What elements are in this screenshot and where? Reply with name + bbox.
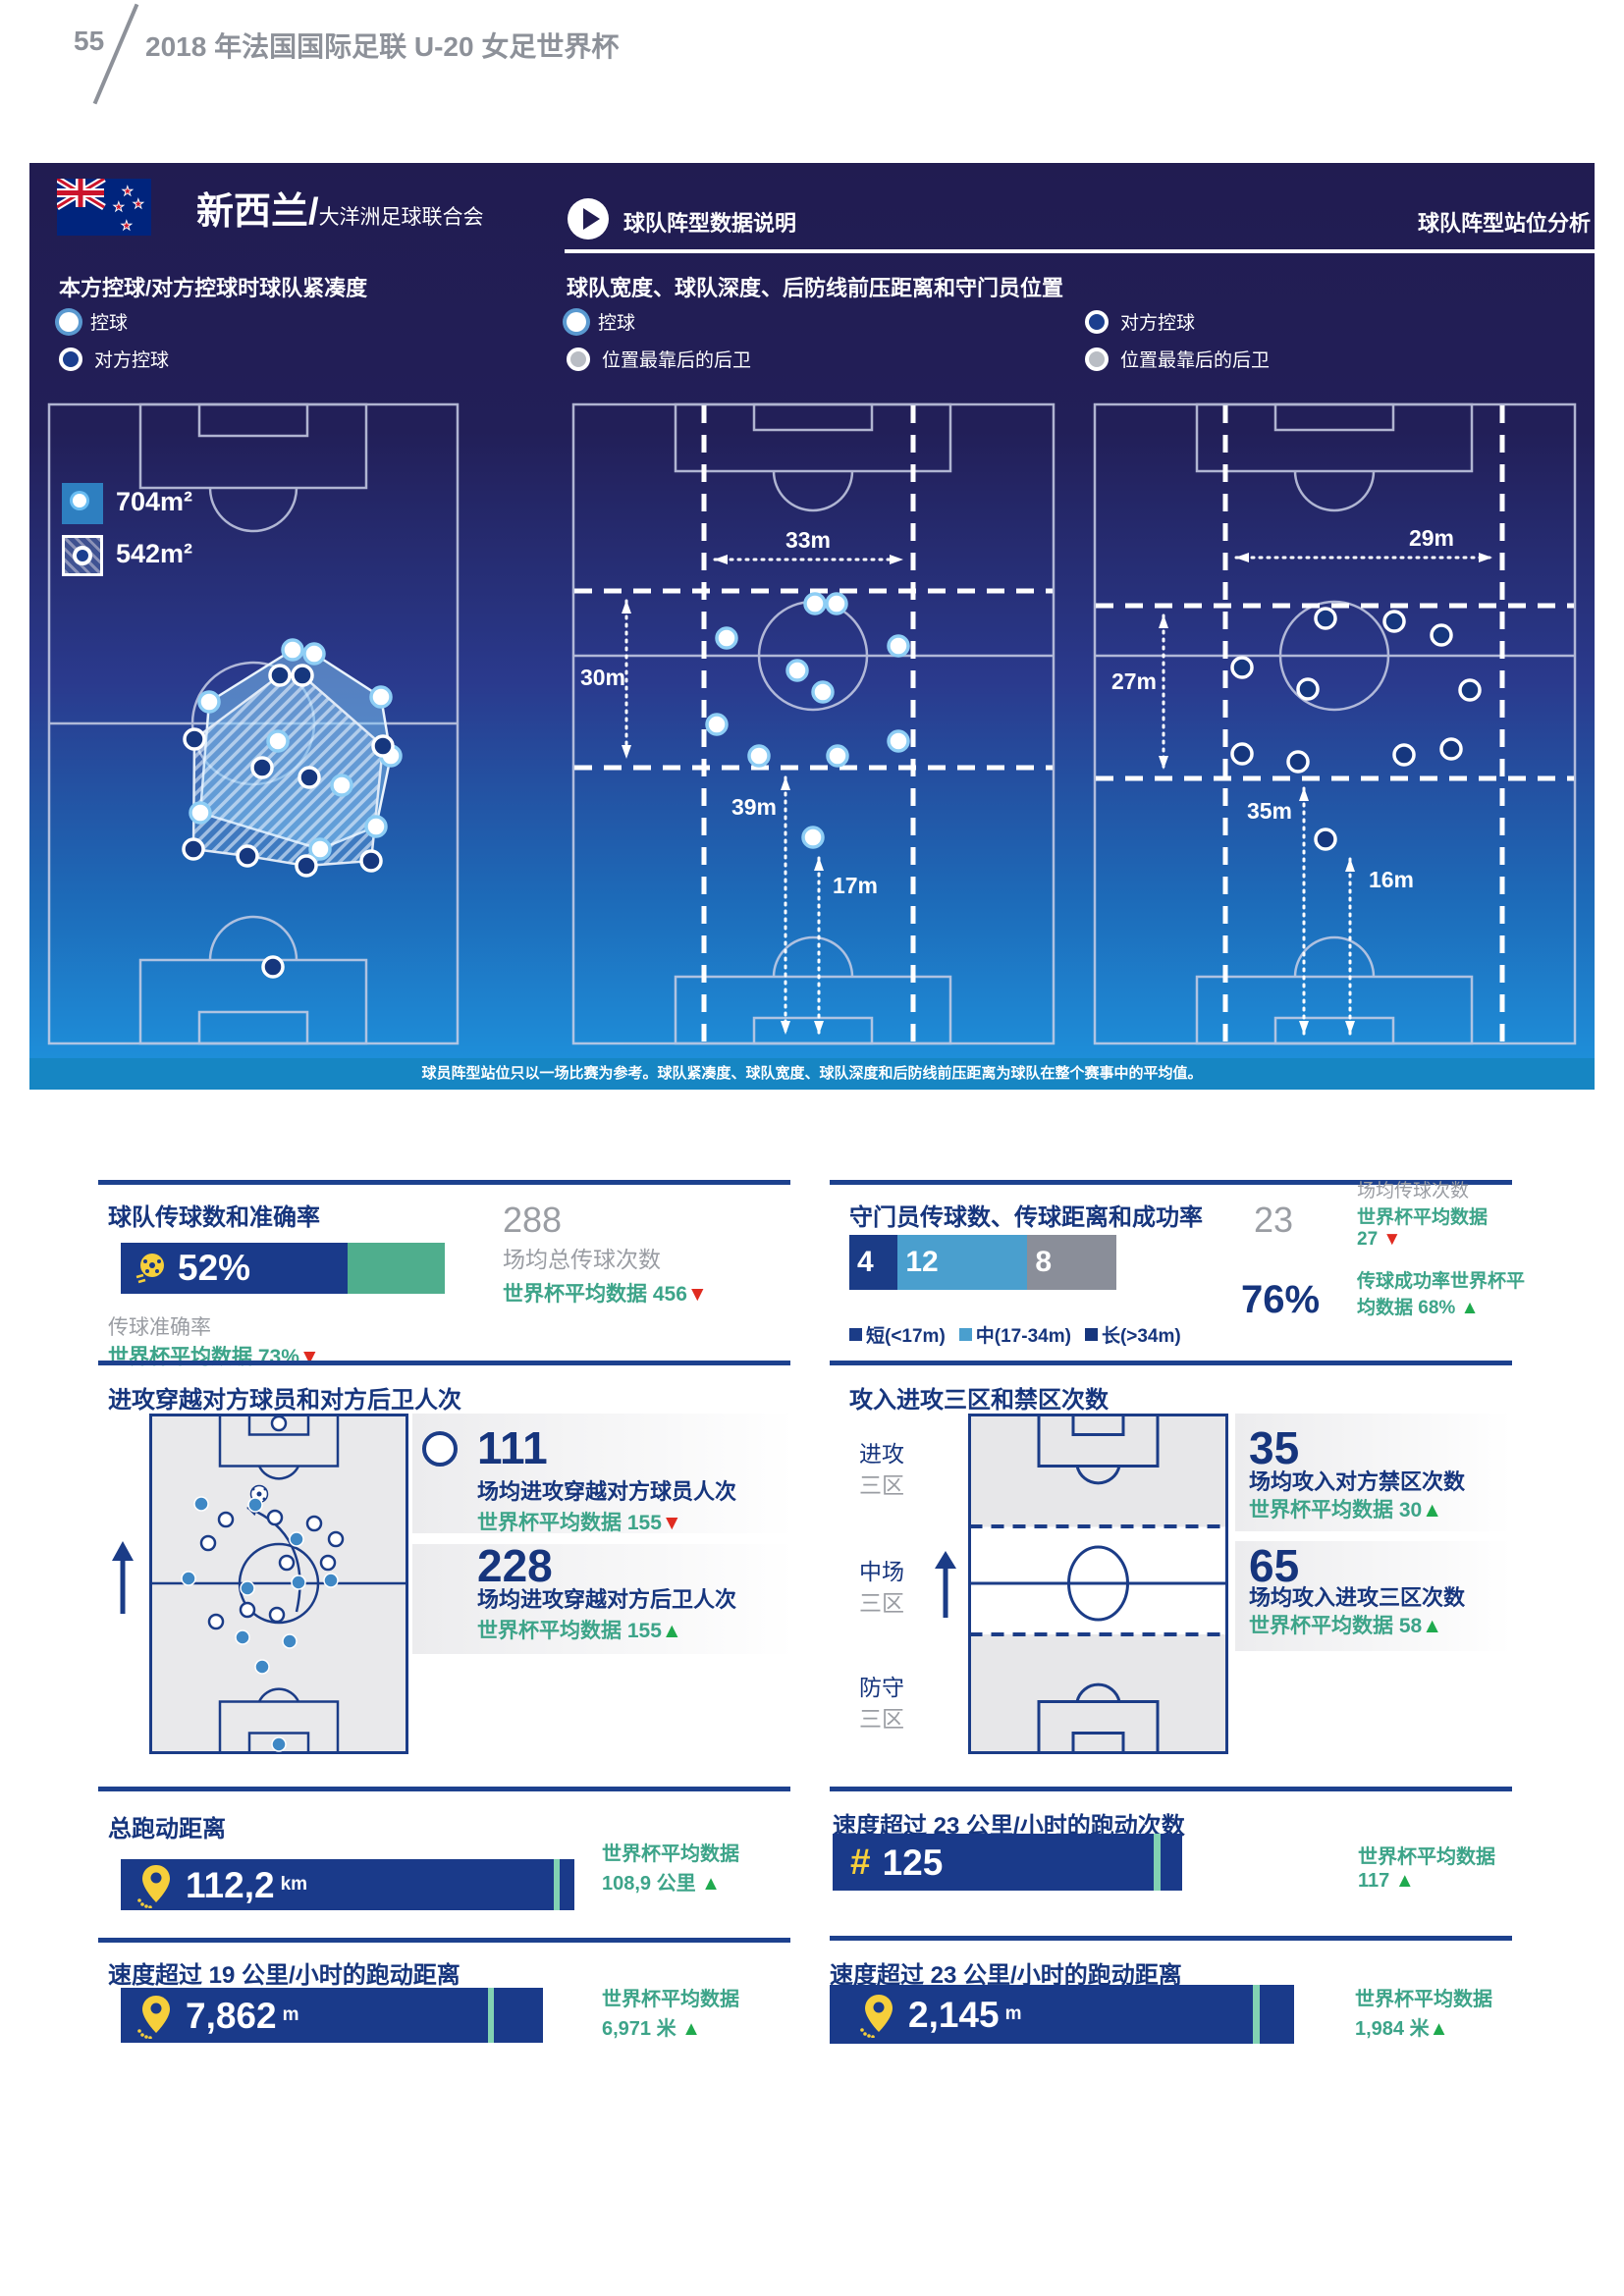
mid-pass-segment: 12 xyxy=(897,1235,1027,1290)
measure-lines xyxy=(1096,405,1574,1042)
short-swatch xyxy=(849,1328,862,1341)
measure-lines xyxy=(574,405,1053,1042)
gk-distance-label: 17m xyxy=(833,873,878,898)
passes-total: 288 xyxy=(503,1200,562,1241)
passing-accuracy-bar: 52% xyxy=(121,1243,445,1294)
ball-icon xyxy=(135,1252,168,1285)
avg-marker xyxy=(1253,1985,1260,2044)
line-height-label: 35m xyxy=(1247,798,1292,824)
compactness-pitch xyxy=(47,402,460,1045)
opponent-dot-icon xyxy=(59,347,82,371)
report-page: 55 2018 年法国国际足联 U-20 女足世界杯 ★ ★ ★ ★ xyxy=(0,0,1624,2296)
mid-swatch xyxy=(959,1328,972,1341)
increase-icon: ▲ xyxy=(1461,1298,1480,1318)
gk-distance-label: 16m xyxy=(1369,867,1414,892)
sprints-bar: # 125 xyxy=(833,1834,1182,1891)
players-penetrated-avg: 世界杯平均数据 155▼ xyxy=(477,1507,682,1536)
legend-possession: 控球 xyxy=(59,308,128,335)
increase-icon: ▲ xyxy=(701,1873,721,1895)
hsr-avg: 6,971 米 ▲ xyxy=(602,2012,701,2041)
divider xyxy=(98,1938,790,1943)
short-pass-segment: 4 xyxy=(849,1235,897,1290)
pin-icon xyxy=(136,1861,176,1908)
play-icon xyxy=(568,198,609,240)
divider xyxy=(98,1787,790,1791)
increase-icon: ▲ xyxy=(681,2018,701,2040)
defenders-penetrated-label: 场均进攻穿越对方后卫人次 xyxy=(477,1582,736,1614)
svg-text:★: ★ xyxy=(113,199,125,214)
players-penetrated-icon xyxy=(422,1431,458,1467)
divider xyxy=(830,1936,1512,1941)
header-divider xyxy=(565,249,1595,253)
attack-direction-arrow xyxy=(933,1549,958,1620)
team-name: 新西兰/ xyxy=(196,181,319,235)
accuracy-remainder-segment xyxy=(348,1243,445,1294)
distance-avg-label: 世界杯平均数据 xyxy=(602,1838,739,1866)
hsr-avg-label: 世界杯平均数据 xyxy=(602,1983,739,2011)
opponent-formation-pitch: 29m 27m 35m 16m xyxy=(1093,402,1577,1045)
divider xyxy=(98,1180,790,1185)
gk-passes: 23 xyxy=(1254,1200,1293,1241)
third-entries-label: 场均攻入进攻三区次数 xyxy=(1249,1580,1465,1612)
penetration-title: 进攻穿越对方球员和对方后卫人次 xyxy=(108,1380,461,1415)
possession-dot-icon xyxy=(567,312,586,332)
defensive-third-zone xyxy=(970,1634,1227,1753)
width-label: 33m xyxy=(785,527,831,553)
zone-attack-label: 进攻 xyxy=(859,1435,904,1468)
sprint-dist-avg-label: 世界杯平均数据 xyxy=(1355,1983,1492,2011)
increase-icon: ▲ xyxy=(1422,1499,1442,1522)
passing-accuracy-value: 52% xyxy=(178,1248,250,1289)
legend-opponent-right: 对方控球 xyxy=(1085,308,1195,335)
third-entries-avg: 世界杯平均数据 58▲ xyxy=(1249,1610,1442,1639)
legend-opponent: 对方控球 xyxy=(59,346,169,372)
sprint-dist-avg: 1,984 米▲ xyxy=(1355,2012,1448,2041)
formation-title: 球队宽度、球队深度、后防线前压距离和守门员位置 xyxy=(567,271,1063,302)
divider xyxy=(830,1787,1512,1791)
decrease-icon: ▼ xyxy=(1382,1229,1401,1250)
sprints-value: 125 xyxy=(883,1844,944,1881)
avg-marker xyxy=(488,1988,494,2043)
hsr-bar: 7,862 m xyxy=(121,1988,543,2043)
compactness-title: 本方控球/对方控球时球队紧凑度 xyxy=(59,271,367,302)
svg-text:★: ★ xyxy=(122,184,134,198)
passes-avg: 世界杯平均数据 456▼ xyxy=(503,1278,708,1308)
sprints-avg-label: 世界杯平均数据 xyxy=(1358,1841,1495,1869)
avg-marker xyxy=(1154,1834,1161,1891)
thirds-pitch xyxy=(968,1414,1228,1754)
opponent-dot-icon xyxy=(1085,310,1109,334)
divider xyxy=(98,1361,790,1365)
increase-icon: ▲ xyxy=(1430,2018,1449,2040)
possession-dot-icon xyxy=(59,312,79,332)
pin-icon xyxy=(136,1992,176,2039)
box-entries-label: 场均攻入对方禁区次数 xyxy=(1249,1465,1465,1496)
distance-title: 总跑动距离 xyxy=(108,1809,226,1843)
accuracy-avg: 世界杯平均数据 73%▼ xyxy=(108,1341,320,1370)
legend-possession-mid: 控球 xyxy=(567,308,635,335)
sprint-dist-unit: m xyxy=(1005,2003,1022,2025)
penetration-pitch xyxy=(149,1414,408,1754)
divider xyxy=(830,1361,1512,1365)
box-entries-avg: 世界杯平均数据 30▲ xyxy=(1249,1494,1442,1523)
increase-icon: ▲ xyxy=(1422,1615,1442,1637)
increase-icon: ▲ xyxy=(662,1620,682,1642)
hsr-unit: m xyxy=(283,2004,299,2026)
decrease-icon: ▼ xyxy=(687,1283,708,1306)
defenders-penetrated-avg: 世界杯平均数据 155▲ xyxy=(477,1615,682,1644)
distance-bar: 112,2 km xyxy=(121,1859,574,1910)
confederation-name: 大洋洲足球联合会 xyxy=(319,201,484,231)
gk-passes-avg: 27 ▼ xyxy=(1357,1229,1401,1251)
gk-bar-legend: 短(<17m) 中(17-34m) 长(>34m) xyxy=(849,1321,1181,1348)
zone-def-label: 防守 xyxy=(859,1669,904,1702)
gk-title: 守门员传球数、传球距离和成功率 xyxy=(849,1198,1203,1232)
gk-passes-label: 场均传球次数 xyxy=(1357,1176,1469,1202)
hash-icon: # xyxy=(850,1842,871,1883)
panel-footnote: 球员阵型站位只以一场比赛为参考。球队紧凑度、球队宽度、球队深度和后防线前压距离为… xyxy=(29,1058,1595,1090)
sprints-avg: 117 ▲ xyxy=(1358,1870,1415,1893)
attacking-third-zone xyxy=(970,1415,1227,1527)
gk-passes-avg-label: 世界杯平均数据 xyxy=(1357,1202,1488,1229)
hsr-title: 速度超过 19 公里/小时的跑动距离 xyxy=(108,1955,460,1990)
width-label: 29m xyxy=(1409,525,1454,551)
new-zealand-flag: ★ ★ ★ ★ xyxy=(57,179,151,236)
gk-success-avg: 传球成功率世界杯平均数据 68% ▲ xyxy=(1357,1269,1529,1321)
attack-direction-arrow xyxy=(110,1539,135,1616)
deepest-defender-dot-icon xyxy=(567,347,590,371)
opponent-area-swatch xyxy=(62,535,103,576)
legend-deepest-defender-right: 位置最靠后的后卫 xyxy=(1085,346,1270,372)
thirds-title: 攻入进攻三区和禁区次数 xyxy=(849,1380,1109,1415)
hsr-value: 7,862 xyxy=(186,1998,277,2034)
decrease-icon: ▼ xyxy=(662,1512,682,1534)
opponent-area-value: 542m² xyxy=(116,539,192,569)
possession-area-swatch xyxy=(62,483,103,524)
deepest-defender-dot-icon xyxy=(1085,347,1109,371)
svg-text:★: ★ xyxy=(121,218,133,233)
possession-formation-pitch: 33m 30m 39m 17m xyxy=(571,402,1056,1045)
sprint-dist-bar: 2,145 m xyxy=(830,1985,1294,2044)
players-penetrated: 111 xyxy=(477,1425,548,1470)
passes-total-label: 场均总传球次数 xyxy=(503,1241,661,1274)
page-title: 2018 年法国国际足联 U-20 女足世界杯 xyxy=(145,26,619,65)
long-swatch xyxy=(1085,1328,1098,1341)
pin-icon xyxy=(859,1991,898,2038)
union-jack xyxy=(57,179,104,207)
depth-label: 27m xyxy=(1111,668,1157,694)
line-height-label: 39m xyxy=(731,794,777,820)
players-penetrated-label: 场均进攻穿越对方球员人次 xyxy=(477,1474,736,1506)
panel-analysis-title: 球队阵型站位分析 xyxy=(1198,206,1591,238)
svg-text:★: ★ xyxy=(133,196,144,211)
panel-section-title: 球队阵型数据说明 xyxy=(623,206,796,238)
increase-icon: ▲ xyxy=(1395,1870,1415,1892)
pitch-lines xyxy=(573,404,1054,1043)
distance-value: 112,2 xyxy=(186,1867,275,1903)
sprint-dist-value: 2,145 xyxy=(908,1997,1000,2033)
possession-area-value: 704m² xyxy=(116,487,192,517)
long-pass-segment: 8 xyxy=(1027,1235,1116,1290)
opponent-dot-icon xyxy=(73,546,92,565)
distance-unit: km xyxy=(281,1874,307,1896)
possession-dot-icon xyxy=(73,494,86,507)
gk-success: 76% xyxy=(1241,1278,1320,1322)
passing-title: 球队传球数和准确率 xyxy=(108,1198,320,1232)
avg-marker xyxy=(554,1859,560,1910)
gk-pass-distance-bar: 4 12 8 xyxy=(849,1235,1116,1290)
legend-deepest-defender: 位置最靠后的后卫 xyxy=(567,346,751,372)
formation-panel: ★ ★ ★ ★ 新西兰/ 大洋洲足球联合会 球队阵型数据说明 球队阵型站位分析 … xyxy=(29,163,1595,1058)
zone-mid-label: 中场 xyxy=(859,1553,904,1586)
distance-avg: 108,9 公里 ▲ xyxy=(602,1867,721,1896)
depth-label: 30m xyxy=(580,665,625,690)
accuracy-label: 传球准确率 xyxy=(108,1311,211,1341)
page-number: 55 xyxy=(74,26,104,57)
